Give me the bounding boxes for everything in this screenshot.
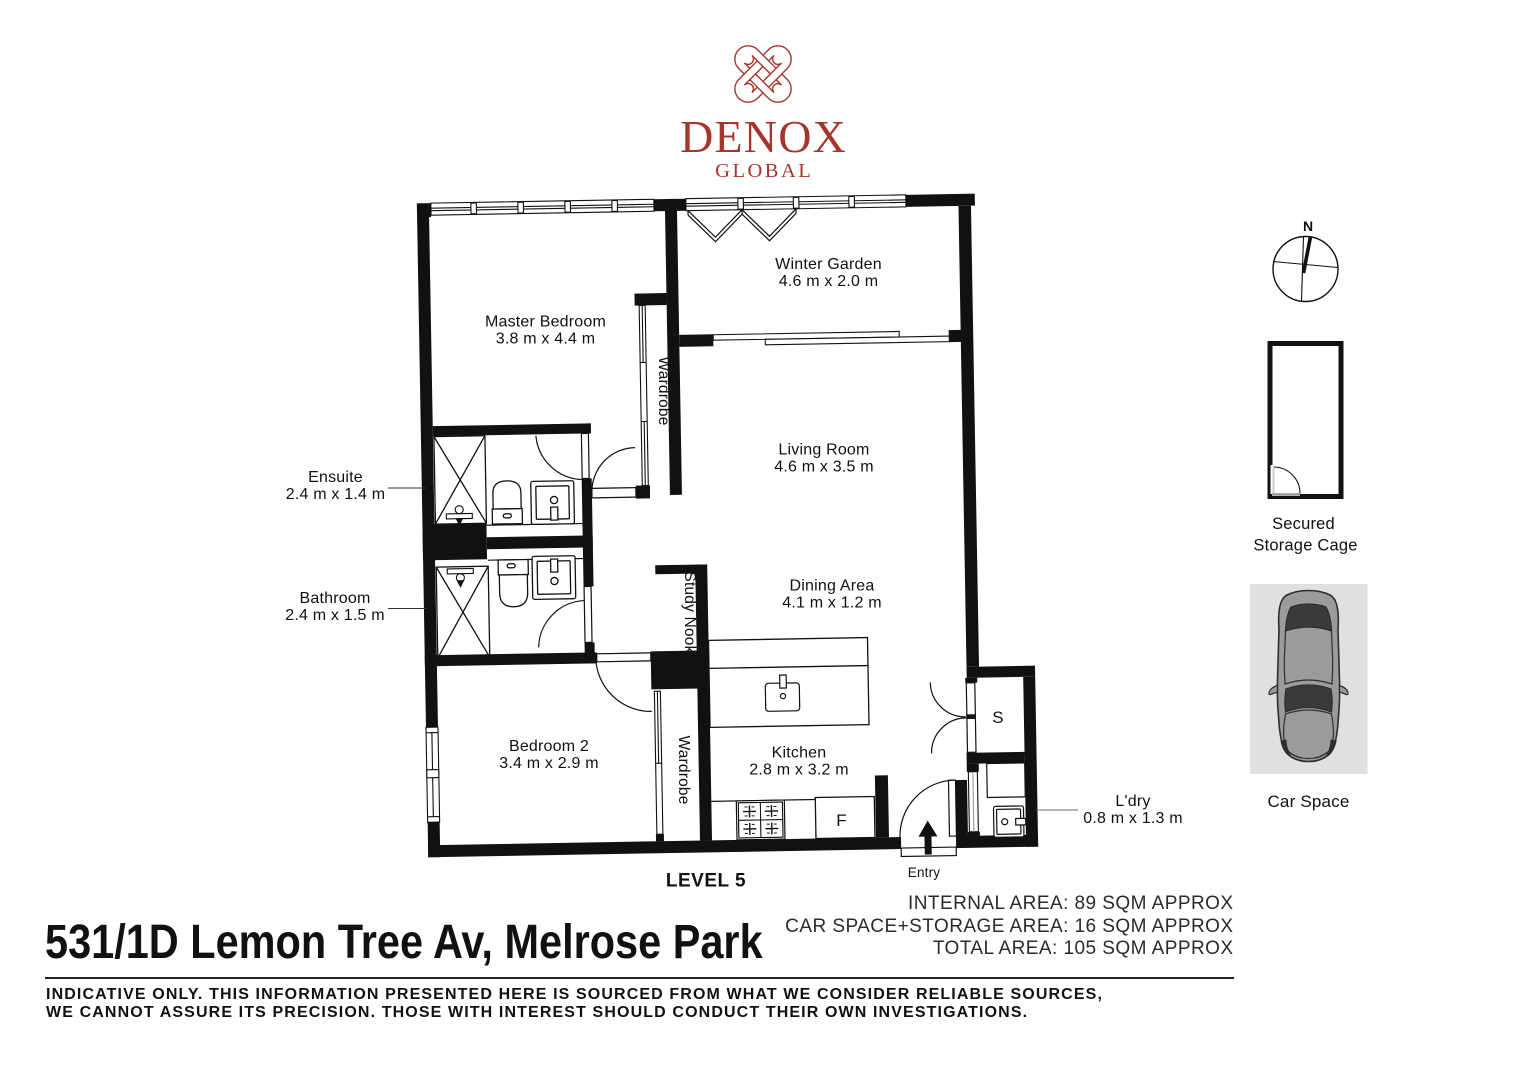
svg-text:0.8 m x 1.3 m: 0.8 m x 1.3 m <box>1083 810 1183 827</box>
svg-text:Entry: Entry <box>908 865 941 880</box>
svg-text:Dining Area: Dining Area <box>790 578 875 595</box>
svg-text:L'dry: L'dry <box>1115 793 1150 810</box>
svg-text:3.4 m x 2.9 m: 3.4 m x 2.9 m <box>499 755 599 772</box>
svg-text:S: S <box>992 708 1004 727</box>
svg-text:Wardrobe: Wardrobe <box>655 356 672 425</box>
svg-text:3.8 m x 4.4 m: 3.8 m x 4.4 m <box>496 331 596 348</box>
svg-text:Study Nook: Study Nook <box>681 571 698 653</box>
svg-text:4.1 m x 1.2 m: 4.1 m x 1.2 m <box>782 595 882 612</box>
svg-text:4.6 m x 2.0 m: 4.6 m x 2.0 m <box>779 273 879 290</box>
svg-text:Secured: Secured <box>1272 515 1335 533</box>
svg-text:Master Bedroom: Master Bedroom <box>485 314 606 331</box>
svg-text:Living Room: Living Room <box>778 442 869 459</box>
svg-text:Car Space: Car Space <box>1267 792 1349 811</box>
svg-text:Winter Garden: Winter Garden <box>775 256 882 273</box>
svg-text:N: N <box>1303 218 1313 234</box>
svg-text:Bedroom 2: Bedroom 2 <box>509 738 589 755</box>
svg-text:Storage Cage: Storage Cage <box>1253 537 1357 555</box>
svg-text:Ensuite: Ensuite <box>308 469 363 486</box>
svg-text:2.4 m x 1.5 m: 2.4 m x 1.5 m <box>285 607 385 624</box>
svg-text:LEVEL 5: LEVEL 5 <box>666 871 746 892</box>
svg-text:2.4 m x 1.4 m: 2.4 m x 1.4 m <box>286 486 386 503</box>
svg-text:Kitchen: Kitchen <box>772 745 827 762</box>
svg-text:2.8 m x 3.2 m: 2.8 m x 3.2 m <box>749 762 849 779</box>
svg-text:F: F <box>836 811 847 830</box>
svg-text:4.6 m x 3.5 m: 4.6 m x 3.5 m <box>774 459 874 476</box>
svg-text:Wardrobe: Wardrobe <box>675 735 692 804</box>
svg-text:Bathroom: Bathroom <box>300 590 371 607</box>
